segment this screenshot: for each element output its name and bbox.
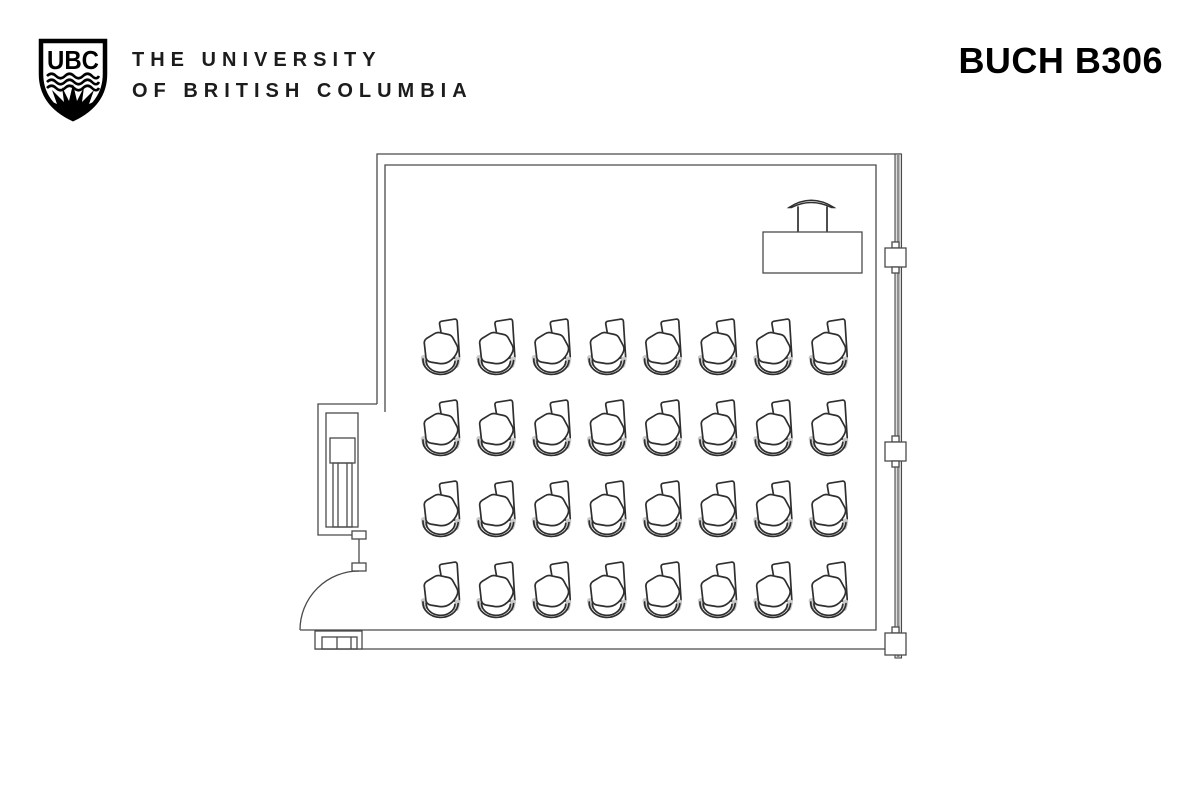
window-wall [885,154,906,658]
student-chair-r2-c4 [587,400,628,455]
student-chair-r1-c8 [808,319,849,374]
wordmark-line1: THE UNIVERSITY [132,45,473,76]
student-chair-r3-c7 [753,481,794,536]
student-chair-r4-c7 [753,562,794,617]
student-chair-r3-c1 [420,481,461,536]
instructor-station [763,200,862,273]
student-chair-r1-c3 [531,319,572,374]
ubc-crest-icon: UBC [38,38,108,122]
door-leaf-cap [352,563,366,571]
student-chair-r1-c6 [697,319,738,374]
student-chair-r1-c7 [753,319,794,374]
student-chair-r1-c4 [587,319,628,374]
mullion [885,242,906,273]
wordmark-line2: OF BRITISH COLUMBIA [132,76,473,107]
instructor-desk [763,232,862,273]
student-chair-r2-c1 [420,400,461,455]
student-chair-r3-c2 [476,481,517,536]
student-chair-r3-c8 [808,481,849,536]
ubc-monogram: UBC [47,45,99,75]
door-hinge-cap [352,531,366,539]
mullion [885,436,906,467]
floor-plan [280,140,940,680]
student-chair-r2-c2 [476,400,517,455]
student-chair-r2-c5 [642,400,683,455]
ubc-logo-block: UBC THE UNIVERSITY OF BRITISH COLUMBIA [38,38,473,122]
entry-alcove [318,404,377,535]
student-chair-r3-c6 [697,481,738,536]
student-chair-r1-c2 [476,319,517,374]
student-chairs [420,319,849,617]
room-walls [300,154,901,649]
student-chair-r3-c5 [642,481,683,536]
instructor-chair [789,200,834,233]
student-chair-r3-c3 [531,481,572,536]
base-cabinet [315,631,362,649]
student-chair-r4-c1 [420,562,461,617]
student-chair-r4-c8 [808,562,849,617]
entry-door [300,531,366,630]
student-chair-r4-c4 [587,562,628,617]
floor-plan-canvas [280,140,940,680]
student-chair-r1-c1 [420,319,461,374]
student-chair-r2-c8 [808,400,849,455]
student-chair-r3-c4 [587,481,628,536]
student-chair-r2-c3 [531,400,572,455]
mullion [885,627,906,655]
student-chair-r4-c2 [476,562,517,617]
room-title: BUCH B306 [958,40,1163,82]
student-chair-r2-c6 [697,400,738,455]
student-chair-r4-c6 [697,562,738,617]
student-chair-r1-c5 [642,319,683,374]
university-wordmark: THE UNIVERSITY OF BRITISH COLUMBIA [132,45,473,107]
door-swing-arc [300,571,359,630]
student-chair-r4-c3 [531,562,572,617]
student-chair-r4-c5 [642,562,683,617]
student-chair-r2-c7 [753,400,794,455]
